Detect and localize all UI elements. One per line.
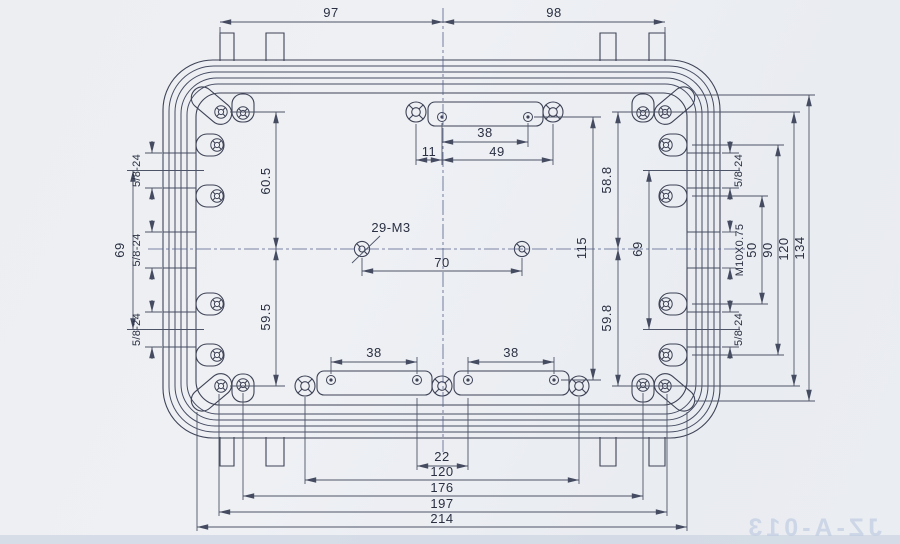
dim-11-label: 11 — [422, 144, 437, 159]
dim-49-label: 49 — [489, 144, 504, 159]
dim-38-top-label: 38 — [477, 125, 492, 140]
svg-text:5/8-24: 5/8-24 — [131, 234, 143, 267]
dim-70-label: 70 — [434, 255, 449, 270]
dim-120-right-label: 120 — [776, 237, 791, 260]
dim-69-right-label: 69 — [630, 241, 645, 256]
centerlines — [148, 8, 752, 452]
dim-22-label: 22 — [434, 449, 449, 464]
bleedthrough-watermark: JZ-A-013 — [744, 514, 882, 542]
top-tabs — [220, 33, 665, 61]
drawing-canvas: JZ-A-013 — [0, 0, 900, 544]
hole-callout-label: 29-M3 — [371, 220, 410, 235]
dim-90-label: 90 — [760, 242, 775, 257]
dim-38-bottom-left-label: 38 — [366, 345, 381, 360]
boss-left-mid — [163, 232, 196, 268]
dim-97-label: 97 — [323, 5, 338, 20]
dim-115-label: 115 — [574, 237, 589, 259]
dim-69-left-label: 69 — [112, 242, 127, 257]
dim-134-label: 134 — [792, 236, 807, 259]
dim-59-8-label: 59.8 — [599, 304, 614, 331]
thread-label-left-mid: 5/8-24 — [131, 220, 162, 280]
dim-98-label: 98 — [546, 5, 561, 20]
dim-60-5-label: 60.5 — [258, 167, 273, 194]
dim-38-bottom-right-label: 38 — [503, 345, 518, 360]
svg-text:5/8-24: 5/8-24 — [131, 313, 143, 346]
svg-text:5/8-24: 5/8-24 — [131, 154, 143, 187]
dim-50-label: 50 — [744, 242, 759, 257]
thread-label-right-mid: M10X0.75 — [722, 220, 746, 280]
dim-59-5-label: 59.5 — [258, 303, 273, 330]
dim-176-label: 176 — [430, 480, 453, 495]
dim-120-bottom-label: 120 — [430, 464, 453, 479]
dim-197-label: 197 — [430, 496, 453, 511]
dim-58-8-label: 58.8 — [599, 166, 614, 193]
dim-214-label: 214 — [430, 511, 453, 526]
scanned-engineering-drawing: JZ-A-013 — [0, 0, 900, 544]
boss-right-mid — [687, 232, 720, 268]
